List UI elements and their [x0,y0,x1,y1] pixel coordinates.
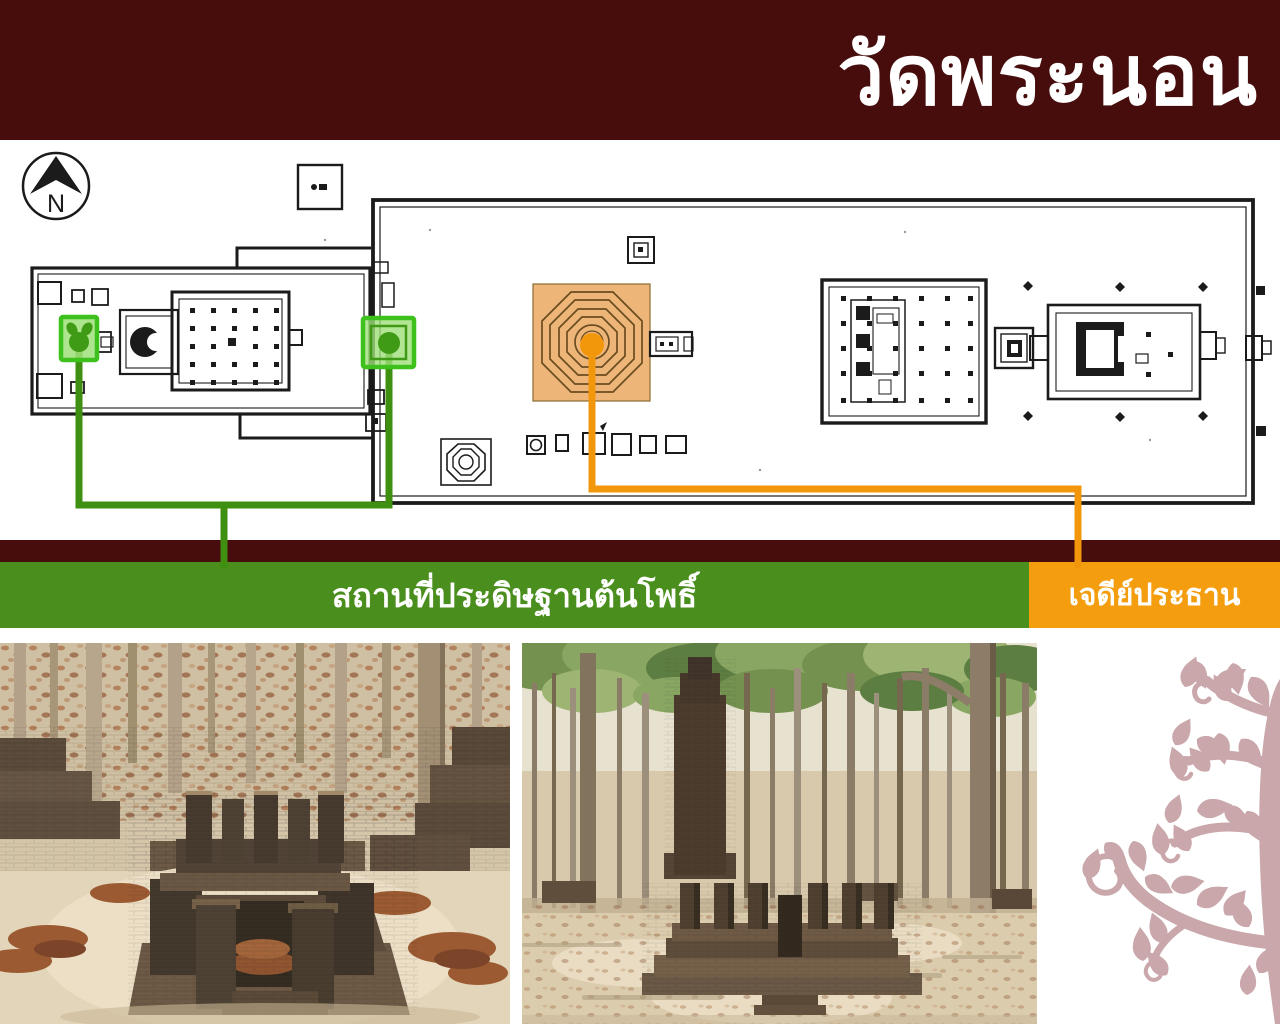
octagonal-chedi [441,439,491,485]
bodhi-tree-icon [1037,643,1280,1024]
page-title: วัดพระนอน [837,0,1258,140]
votive-base-row [527,422,686,455]
green-canopy [522,643,1037,717]
distant-brick-tower [664,657,736,879]
photo-bodhi-shrine-closeup [0,643,510,1024]
pillared-hall-west [172,292,302,390]
chedi-east-porch [650,332,693,356]
pillared-hall-east [822,280,986,423]
west-enclosure [32,248,373,438]
site-plan: N [0,140,1280,540]
central-brick-ruin [128,791,418,1015]
east-vihara [1030,305,1225,399]
bodhi-location-label: สถานที่ประดิษฐานต้นโพธิ์ [0,562,1029,628]
bodhi-tree-motif-panel [1037,643,1280,1024]
north-compass-icon: N [23,153,89,219]
outlying-shrine-box [298,165,342,209]
pillar-dots-west [190,308,279,385]
east-mondop [995,328,1033,368]
site-plan-area: N [0,140,1280,540]
header-bar: วัดพระนอน [0,0,1280,140]
maroon-divider [0,540,1280,562]
reclining-buddha-vihara [120,310,178,374]
compass-n-label: N [47,190,65,218]
photo-row [0,643,1280,1024]
legend-row: สถานที่ประดิษฐานต้นโพธิ์ เจดีย์ประธาน [0,562,1280,628]
main-enclosure [366,200,1271,503]
photo-forest-chedi-platform [522,643,1037,1024]
principal-chedi-label: เจดีย์ประธาน [1029,562,1280,628]
temple-poster: วัดพระนอน N [0,0,1280,1024]
principal-chedi [533,284,693,401]
